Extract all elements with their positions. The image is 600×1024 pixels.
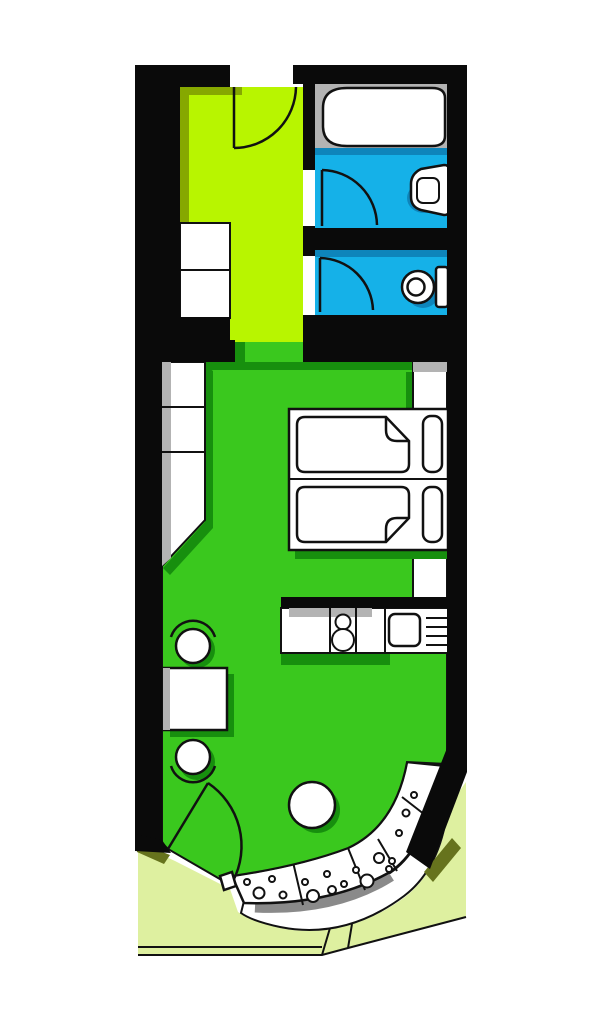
burner-small: [336, 615, 351, 630]
kitchen-under-shadow: [281, 653, 390, 665]
wardrobe-cell-top: [180, 223, 230, 270]
pebble: [389, 858, 395, 864]
wc-top-shadow: [315, 250, 447, 257]
pebble: [341, 881, 347, 887]
toilet-tank: [436, 267, 448, 307]
floor-plan-svg: [0, 0, 600, 1024]
burner-large: [332, 629, 354, 651]
pebble: [324, 871, 330, 877]
pebble: [396, 830, 402, 836]
bed-upper-blanket: [297, 417, 409, 472]
wall-left-upper: [135, 65, 180, 317]
bed-upper-pillow: [423, 416, 442, 472]
pebble: [403, 810, 410, 817]
wall-left-lower: [135, 362, 162, 840]
bathtub: [323, 88, 445, 146]
pebble: [386, 866, 392, 872]
beds-shadow: [295, 550, 456, 559]
chair-lower: [176, 740, 210, 774]
pebble: [269, 876, 275, 882]
pebble: [411, 792, 417, 798]
hall-wardrobe: [180, 223, 230, 318]
pebble: [361, 875, 374, 888]
wall-right: [447, 84, 467, 755]
sink-basin: [389, 614, 420, 646]
pebble: [302, 879, 308, 885]
floor-plan-page: [0, 0, 600, 1024]
pebble: [280, 892, 287, 899]
washbasin-bowl: [417, 178, 439, 203]
bathroom-top-shadow: [315, 148, 447, 155]
chair-upper: [176, 629, 210, 663]
pebble: [353, 867, 359, 873]
toilet: [402, 267, 448, 307]
stove-burners: [332, 615, 354, 652]
entry-hall: [180, 87, 303, 342]
beds: [289, 409, 448, 550]
bed-lower-pillow: [423, 487, 442, 542]
pebble: [307, 890, 319, 902]
balcony-door-threshold: [220, 872, 236, 890]
dining-table-grey-edge: [163, 668, 170, 730]
closet-grey-edge: [162, 362, 171, 566]
wall-hall-bath-divider-lower: [303, 226, 315, 256]
bed-lower-blanket: [297, 487, 409, 542]
bathroom: [315, 84, 449, 228]
hall-top-shadow: [180, 87, 242, 95]
wall-mid-right: [303, 315, 467, 362]
pebble: [374, 853, 384, 863]
pebble: [328, 886, 336, 894]
band-left-shadow: [406, 372, 413, 408]
main-top-shadow: [205, 362, 413, 370]
toilet-bowl-inner: [408, 279, 425, 296]
pebble: [244, 879, 250, 885]
window-ledge-grey-cap: [413, 362, 447, 372]
round-table: [289, 782, 335, 828]
wardrobe-cell-bottom: [180, 270, 230, 318]
wall-top-right: [293, 65, 467, 84]
dining-table: [163, 668, 227, 730]
wall-bath-wc-divider: [315, 228, 447, 250]
wall-mid-left: [135, 317, 230, 362]
washbasin: [411, 165, 449, 215]
wall-hall-bath-divider-upper: [303, 84, 315, 170]
pebble: [254, 888, 265, 899]
kitchen-backsplash-bar: [281, 597, 450, 608]
wall-mid-sliver: [230, 340, 235, 362]
